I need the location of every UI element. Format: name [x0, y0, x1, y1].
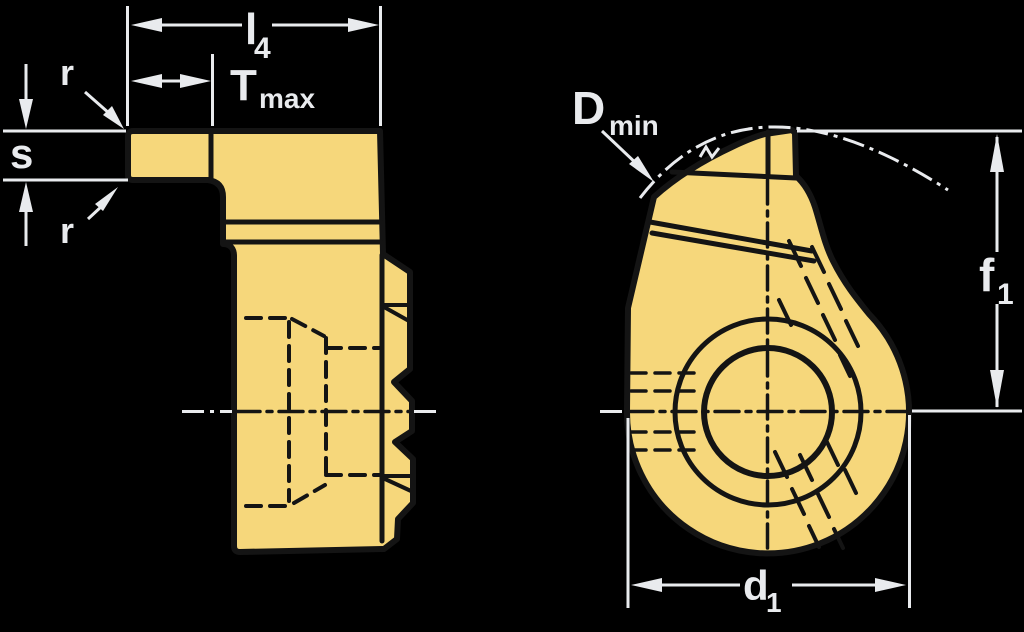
f1-arrow-up	[990, 134, 1004, 172]
tmax-arrow-left	[131, 74, 162, 88]
l4-arrow-right	[348, 18, 379, 32]
side-view	[128, 131, 413, 552]
dimension-r-bottom: r	[60, 187, 118, 251]
d1-arrow-right	[875, 578, 906, 592]
drawing-canvas: l 4 T max s r	[0, 0, 1024, 632]
label-d1-sub: 1	[766, 587, 782, 618]
s-arrow-down	[19, 99, 33, 129]
label-f1: f	[979, 249, 995, 301]
label-d1: d	[743, 562, 769, 609]
label-tmax: T	[230, 61, 257, 110]
label-r-bottom: r	[60, 210, 74, 251]
side-view-outline	[128, 131, 413, 552]
dimension-r-top: r	[60, 52, 124, 129]
f1-arrow-down	[990, 370, 1004, 408]
tmax-arrow-right	[180, 74, 211, 88]
label-s: s	[10, 130, 33, 177]
label-tmax-sub: max	[259, 83, 315, 114]
dimension-tmax: T max	[131, 54, 315, 126]
label-f1-sub: 1	[997, 278, 1014, 311]
front-view	[627, 130, 909, 553]
d1-arrow-left	[631, 578, 662, 592]
l4-arrow-left	[131, 18, 162, 32]
label-dmin-sub: min	[609, 110, 659, 141]
s-arrow-up	[19, 182, 33, 212]
technical-drawing: l 4 T max s r	[0, 0, 1024, 632]
label-dmin: D	[572, 82, 605, 134]
label-r-top: r	[60, 52, 74, 93]
